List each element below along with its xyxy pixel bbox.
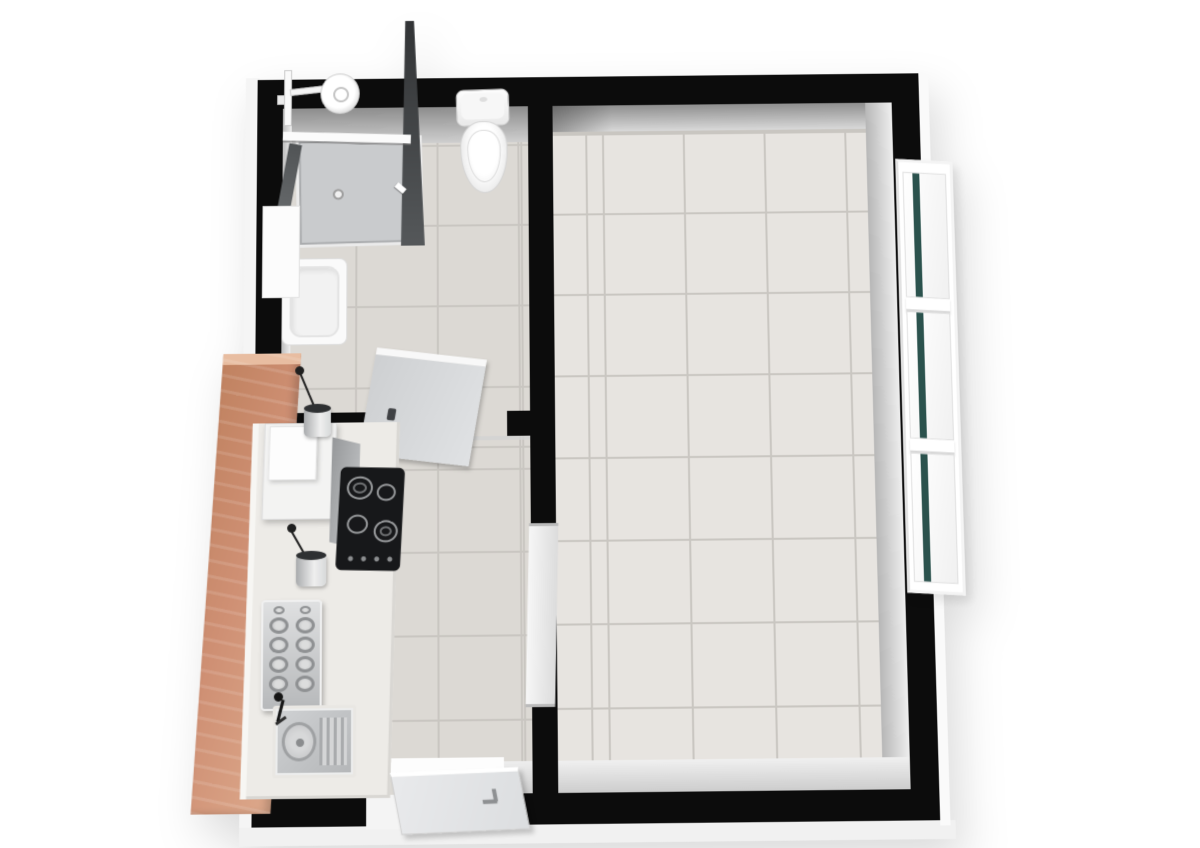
window-pane [910, 452, 958, 584]
entry-door [390, 767, 531, 835]
window-bank [895, 159, 966, 596]
dish-rack-bowl [295, 656, 314, 673]
dish-rack-bowl [269, 617, 288, 634]
toilet [455, 88, 514, 200]
dish-rack-cup [299, 606, 310, 614]
cooktop-knob [374, 556, 379, 561]
kitchen-sink-basin [282, 722, 317, 762]
cooktop-knob [361, 556, 366, 561]
pendant-lamp-shade [304, 407, 331, 437]
floorplan-stage [0, 0, 1200, 848]
cooktop-knob [348, 556, 353, 561]
dish-rack-bowl [295, 617, 314, 634]
cooktop-burner [376, 484, 396, 501]
apartment-floorplan [251, 73, 940, 827]
cooktop-burner [346, 476, 373, 500]
window-pane [906, 311, 954, 441]
dish-rack-bowl [295, 675, 314, 692]
window-glass [920, 454, 931, 582]
dish-rack-bowl [295, 636, 314, 653]
shower-riser-pipe [284, 70, 292, 126]
dish-rack-bowl [268, 656, 287, 673]
toilet-bowl [459, 120, 509, 194]
bottom-wall-inner-face [558, 757, 911, 793]
range-hood [262, 423, 337, 520]
dish-rack-bowl [269, 637, 288, 654]
living-room-door-closed [526, 523, 559, 707]
dish-rack-cup [273, 606, 284, 614]
vanity-cabinet [262, 206, 300, 299]
bathroom-door-handle [386, 408, 396, 421]
kitchen-sink-drainboard [319, 717, 347, 765]
cooktop-burner [373, 520, 398, 543]
living-room-floor-tiles [553, 129, 911, 793]
living-room-top-wall-face [552, 102, 892, 132]
window-glass [916, 312, 927, 438]
window-pane [902, 172, 949, 300]
pendant-lamp-shade [296, 554, 326, 587]
dish-rack-bowl [268, 676, 287, 693]
shower-drain [333, 189, 344, 200]
cooktop [335, 467, 405, 571]
kitchen-faucet [273, 691, 294, 726]
window-glass [912, 173, 923, 297]
cooktop-burner [346, 514, 368, 534]
cooktop-knobs [348, 556, 393, 563]
cooktop-knob [387, 557, 392, 562]
